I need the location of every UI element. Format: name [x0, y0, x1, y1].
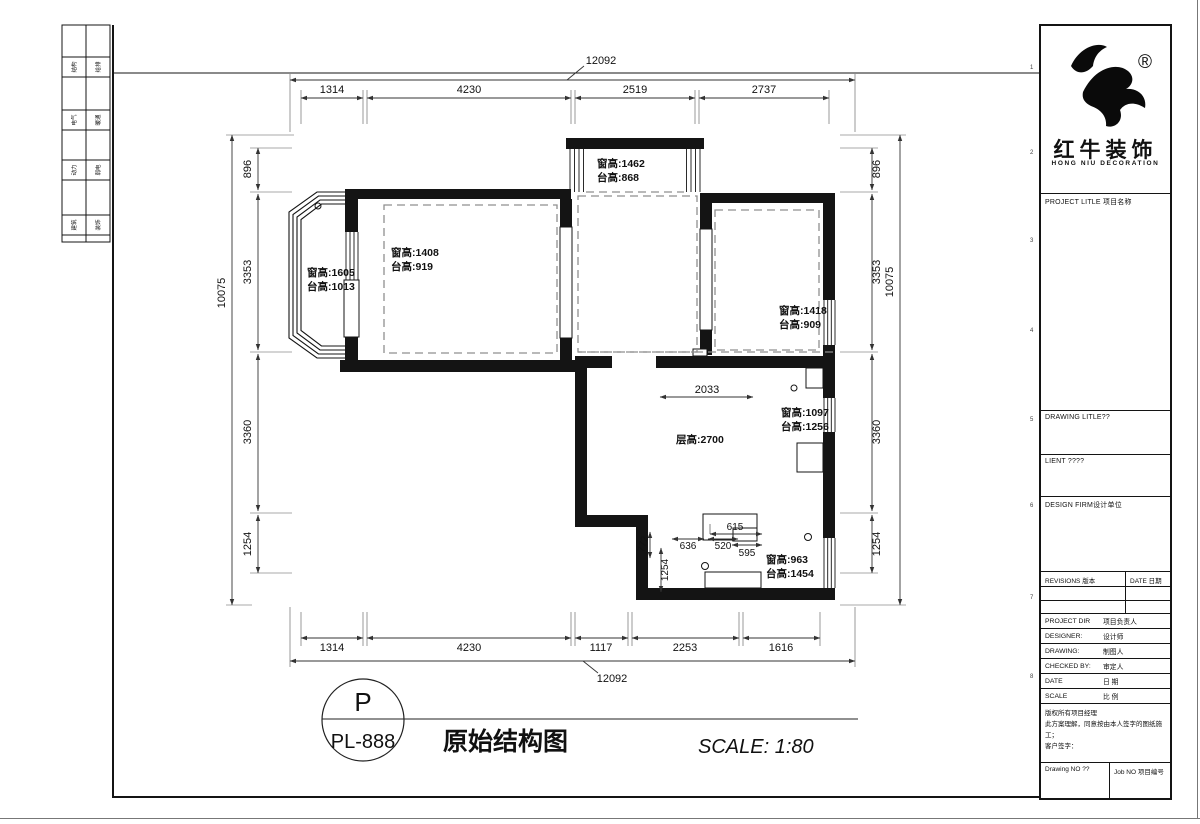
dim-label: 3353	[242, 260, 254, 284]
title-block: ® 红牛装饰 HONG NIU DECORATION PROJECT LITLE…	[1039, 24, 1172, 800]
fold-number: 8	[1030, 674, 1034, 680]
dim-label: 1254	[871, 532, 883, 556]
fold-number: 7	[1030, 595, 1034, 601]
dim-label: 2253	[673, 642, 697, 654]
brand-logo-box: ® 红牛装饰 HONG NIU DECORATION	[1041, 26, 1170, 194]
dim-label-left-overall: 10075	[216, 278, 228, 309]
dimensions-bottom	[290, 607, 855, 673]
drawing-title-bubble: P PL-888 原始结构图 SCALE: 1:80	[322, 679, 858, 761]
dimension-labels-top: 12092 1314 4230 2519 2737	[320, 55, 776, 96]
credit-row-project-dir: PROJECT DIR项目负责人	[1041, 614, 1170, 629]
dim-label: 1616	[769, 642, 793, 654]
dim-label: 896	[871, 160, 883, 178]
dim-label-top-overall: 12092	[586, 55, 617, 67]
dim-label: 595	[739, 548, 756, 559]
revisions-label: REVISIONS 版本	[1045, 575, 1095, 585]
sheet-frame	[0, 0, 1200, 819]
dim-label: 2519	[623, 84, 647, 96]
frame-fold-numbers: 1 2 3 4 5 6 7 8	[1030, 65, 1034, 680]
drawing-title: 原始结构图	[443, 728, 568, 756]
strip-cell: 装饰	[94, 219, 102, 231]
design-firm-label: DESIGN FIRM设计单位	[1041, 497, 1170, 510]
bubble-letter: P	[354, 687, 371, 717]
project-title-label: PROJECT LITLE 项目名称	[1041, 194, 1170, 207]
window-label: 台高:909	[779, 318, 821, 331]
revisions-date-label: DATE 日期	[1130, 575, 1162, 585]
dimension-labels-interior: 2033 615 636 520 595 772 1254	[636, 384, 756, 581]
ceiling-height-label: 层高:2700	[676, 433, 724, 446]
dim-label: 1117	[590, 642, 613, 654]
revisions-table: REVISIONS 版本 DATE 日期	[1041, 572, 1170, 614]
drawing-title-label: DRAWING LITLE??	[1041, 411, 1170, 421]
window-label: 台高:868	[597, 171, 639, 184]
window-label: 窗高:1408	[391, 246, 439, 259]
dim-label: 615	[727, 522, 744, 533]
strip-cell: 建筑	[70, 219, 78, 231]
client-section: LIENT ????	[1041, 455, 1170, 497]
window-label: 窗高:1097	[781, 406, 829, 419]
exterior-walls	[340, 138, 835, 600]
note-line: 版权所有项目经理	[1045, 708, 1167, 719]
dim-label: 3360	[871, 420, 883, 444]
fold-number: 1	[1030, 65, 1034, 71]
strip-cell: 暖通	[94, 114, 102, 126]
registered-trademark-icon: ®	[1138, 52, 1152, 74]
credit-row-designer: DESIGNER:设计师	[1041, 629, 1170, 644]
dim-label: 1254	[242, 532, 254, 556]
dim-label-right-overall: 10075	[884, 267, 896, 298]
window-label: 台高:919	[391, 260, 433, 273]
brand-name-en: HONG NIU DECORATION	[1041, 160, 1170, 167]
fold-number: 4	[1030, 328, 1034, 334]
dimensions-left	[226, 135, 294, 605]
window-label: 窗高:963	[766, 553, 808, 566]
strip-cell: 结构	[70, 61, 78, 73]
fold-number: 3	[1030, 238, 1034, 244]
job-no-label: Job NO 项目编号	[1110, 763, 1170, 798]
credit-row-drawing: DRAWING:制图人	[1041, 644, 1170, 659]
dimension-labels-bottom: 1314 4230 1117 2253 1616 12092	[320, 642, 793, 685]
floor-plan-canvas: 结构 给排 电气 暖通 动力 弱电 建筑 装饰 1 2 3 4 5 6 7 8	[0, 0, 1200, 824]
credit-row-checked-by: CHECKED BY:审定人	[1041, 659, 1170, 674]
dimension-labels-left: 10075 896 3353 3360 1254	[216, 160, 254, 556]
note-line: 客户签字：	[1045, 741, 1167, 752]
dimensions-top	[290, 66, 855, 132]
window-label: 台高:1013	[307, 280, 355, 293]
window-label: 窗高:1462	[597, 157, 645, 170]
fold-number: 5	[1030, 417, 1034, 423]
brand-bird-logo	[1041, 26, 1170, 131]
copyright-notes: 版权所有项目经理 此方案理解，同意按由本人签字的图纸施工； 客户签字：	[1041, 704, 1170, 763]
window-label: 窗高:1605	[307, 266, 355, 279]
drawing-number-row: Drawing NO ?? Job NO 项目编号	[1041, 763, 1170, 798]
fold-number: 2	[1030, 150, 1034, 156]
credit-row-date: DATE日 期	[1041, 674, 1170, 689]
dim-label: 1314	[320, 642, 344, 654]
bubble-code: PL-888	[331, 731, 396, 753]
dimension-labels-right: 10075 896 3353 3360 1254	[871, 160, 896, 556]
drawing-sheet: 结构 给排 电气 暖通 动力 弱电 建筑 装饰 1 2 3 4 5 6 7 8	[0, 0, 1200, 824]
strip-cell: 动力	[70, 164, 78, 175]
dim-label: 2033	[695, 384, 719, 396]
dim-label: 3353	[871, 260, 883, 284]
dim-label: 636	[680, 541, 697, 552]
drawing-no-label: Drawing NO ??	[1041, 763, 1110, 798]
strip-cell: 给排	[94, 61, 102, 73]
project-title-section: PROJECT LITLE 项目名称	[1041, 194, 1170, 411]
fold-number: 6	[1030, 503, 1034, 509]
dim-label: 520	[715, 541, 732, 552]
dim-label: 4230	[457, 84, 481, 96]
dim-label: 896	[242, 160, 254, 178]
window-label: 台高:1256	[781, 420, 829, 433]
dim-label: 3360	[242, 420, 254, 444]
strip-cell: 弱电	[94, 164, 102, 176]
client-label: LIENT ????	[1041, 455, 1170, 465]
dashed-partitions	[384, 192, 833, 353]
dim-label: 4230	[457, 642, 481, 654]
scale-text: SCALE: 1:80	[698, 736, 814, 758]
note-line: 此方案理解，同意按由本人签字的图纸施工；	[1045, 719, 1167, 741]
signature-strip	[62, 25, 110, 242]
window-label: 台高:1454	[766, 567, 814, 580]
dim-label: 2737	[752, 84, 776, 96]
design-firm-section: DESIGN FIRM设计单位	[1041, 497, 1170, 572]
drawing-title-section: DRAWING LITLE??	[1041, 411, 1170, 455]
dim-label: 1314	[320, 84, 344, 96]
dim-label: 1254	[660, 558, 671, 581]
window-label: 窗高:1418	[779, 304, 827, 317]
credit-row-scale: SCALE比 例	[1041, 689, 1170, 704]
strip-cell: 电气	[70, 114, 78, 126]
dim-label-bottom-overall: 12092	[597, 673, 628, 685]
